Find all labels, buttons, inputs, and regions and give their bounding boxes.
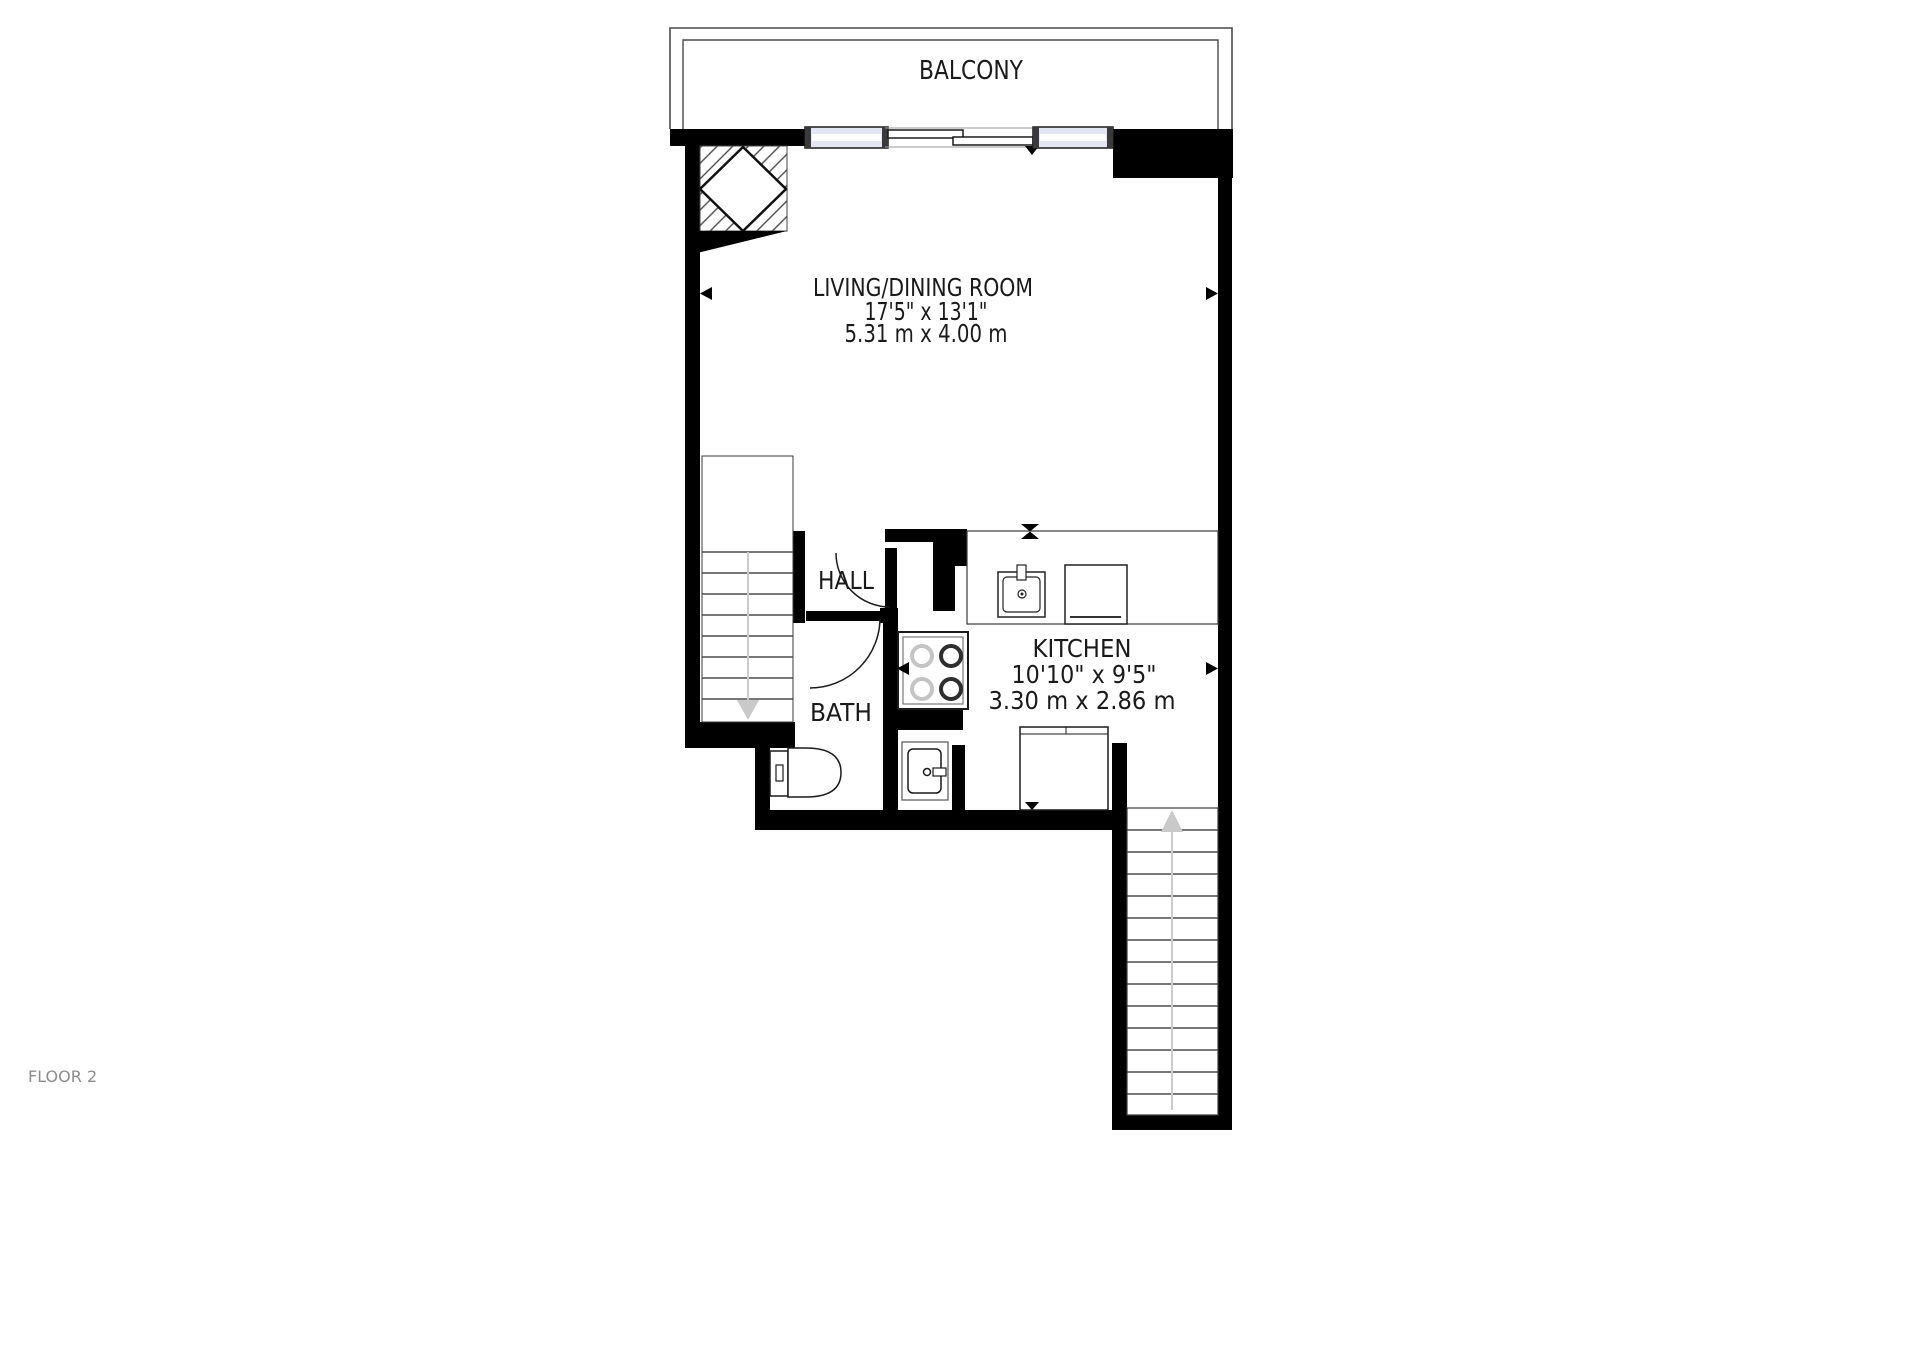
window-left-pane [812,134,881,141]
burner-left-top [912,646,932,666]
window-left [805,127,888,148]
sliding-door-panel-b [953,137,1033,145]
bath-label: BATH [810,698,872,727]
kitchen-counter [967,531,1218,624]
opening-marker-top-icon [1021,524,1039,532]
sliding-door-panel-a [888,130,963,138]
living-room-size-metric: 5.31 m x 4.00 m [845,319,1008,348]
toilet-bowl [788,748,841,797]
stairwell-left-wall [1112,743,1127,1130]
fridge-icon [1020,727,1108,810]
bath-door-arc [810,618,880,688]
closet-right-wall [933,542,955,611]
kitchen-size-metric: 3.30 m x 2.86 m [989,686,1176,715]
bath-basin-icon [902,742,948,800]
window-left-cap-b [882,127,888,148]
window-right-cap-b [1107,127,1113,148]
basin-faucet [933,768,946,776]
top-wall-openings [805,127,1113,155]
burner-left-bottom [912,679,932,699]
burner-right-bottom [941,679,961,699]
window-right-pane [1040,134,1106,141]
top-wall-right-block [1113,129,1233,178]
kitchen-label: KITCHEN [1033,634,1132,663]
kitchen-right-arrow-icon [1206,662,1218,675]
balcony-label: BALCONY [919,56,1023,86]
stairs-lower [1127,808,1218,1115]
bath-door-leaf [806,611,880,621]
room-labels: LIVING/DINING ROOM 17'5" x 13'1" 5.31 m … [810,273,1176,727]
hall-label: HALL [818,566,874,595]
chimney-corner-wedge [685,231,787,256]
closet-door-leaf [885,548,897,608]
window-right-cap-a [1033,127,1039,148]
kitchen-size-imperial: 10'10" x 9'5" [1012,660,1157,689]
closet-top-wall [885,529,967,542]
basin-niche-right-wall [952,745,965,810]
sink-drain-dot [1021,593,1024,596]
window-right [1033,127,1113,148]
stairs-upper [702,456,793,722]
closet-step-wall [955,542,967,566]
fridge-box [1020,727,1108,810]
hall-left-wall [793,531,805,623]
window-left-cap-a [805,127,811,148]
stairwell-bottom-wall [1112,1115,1232,1130]
stove-bottom-wall [883,710,963,730]
counter-appliance-icon [1065,565,1127,624]
kitchen-sink-icon [998,565,1045,617]
left-wall [685,129,700,722]
floor-plan-drawing: BALCONY [0,0,1920,1358]
sliding-door [885,128,1039,155]
living-left-arrow-icon [700,287,712,300]
stairs-bottom-wall [685,722,795,748]
balcony: BALCONY [670,28,1232,129]
toilet-button [776,765,783,781]
sink-faucet [1017,565,1026,580]
living-right-arrow-icon [1206,287,1218,300]
right-wall [1218,146,1232,1130]
chimney-corner [685,146,787,256]
appliance-box [1065,565,1127,624]
bottom-wall [755,810,1127,830]
burner-right-top [941,646,961,666]
toilet-icon [770,748,841,797]
floor-plan-page: BALCONY [0,0,1920,1358]
floor-label: FLOOR 2 [28,1067,97,1086]
